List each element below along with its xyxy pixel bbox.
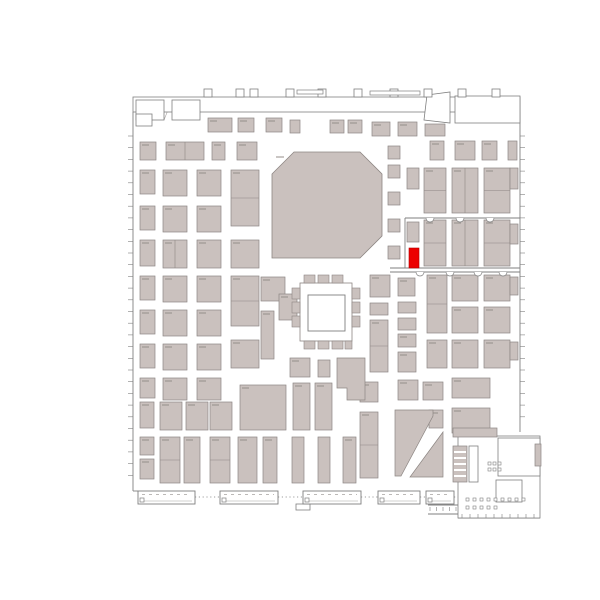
furniture-dot	[466, 506, 469, 509]
booth[interactable]	[163, 170, 187, 196]
furniture-dot	[473, 506, 476, 509]
booth[interactable]	[163, 276, 187, 302]
booth[interactable]	[231, 240, 259, 268]
booth[interactable]	[398, 334, 416, 347]
module-endcap	[305, 498, 309, 502]
booth[interactable]	[510, 277, 518, 295]
booth[interactable]	[453, 428, 497, 437]
booth[interactable]	[398, 318, 416, 330]
booth[interactable]	[292, 437, 304, 483]
booth[interactable]	[348, 120, 362, 133]
booth[interactable]	[210, 402, 232, 430]
furniture-dot	[493, 462, 496, 465]
bottom-service-module	[138, 491, 195, 504]
booth[interactable]	[186, 402, 208, 430]
ring-booth[interactable]	[304, 341, 315, 349]
booth[interactable]	[197, 240, 221, 268]
furniture-dot	[508, 498, 511, 501]
ring-booth[interactable]	[292, 302, 300, 313]
furniture-dot	[494, 506, 497, 509]
roof-tab	[236, 89, 244, 97]
door-arc	[416, 272, 424, 276]
booth[interactable]	[140, 402, 154, 428]
booth[interactable]	[510, 224, 518, 244]
booth[interactable]	[197, 310, 221, 336]
roof-tab	[354, 89, 362, 97]
booth[interactable]	[407, 222, 419, 242]
furniture-dot	[498, 462, 501, 465]
booth[interactable]	[343, 437, 356, 483]
roof-tab	[286, 89, 294, 97]
booth[interactable]	[266, 118, 282, 132]
ring-booth[interactable]	[352, 288, 360, 299]
booth[interactable]	[238, 118, 254, 132]
floor-plan-viewer	[0, 0, 600, 600]
booth[interactable]	[163, 310, 187, 336]
furniture-dot	[522, 498, 525, 501]
ring-booth[interactable]	[352, 316, 360, 327]
booth[interactable]	[372, 122, 390, 136]
octagon-pavilion[interactable]	[272, 152, 382, 258]
furniture-dot	[515, 498, 518, 501]
roof-tab	[250, 89, 258, 97]
ring-booth[interactable]	[318, 275, 329, 283]
booth[interactable]	[318, 360, 330, 377]
furniture-dot	[480, 498, 483, 501]
booth[interactable]	[140, 310, 155, 334]
building-structure	[469, 446, 478, 482]
booth[interactable]	[388, 192, 400, 205]
booth[interactable]	[452, 275, 478, 301]
ring-booth[interactable]	[332, 341, 343, 349]
booth[interactable]	[318, 437, 330, 483]
bottom-service-module	[303, 491, 361, 504]
furniture-dot	[501, 498, 504, 501]
booth[interactable]	[231, 340, 259, 368]
roof-tab	[424, 89, 432, 97]
furniture-dot	[480, 506, 483, 509]
booth[interactable]	[163, 206, 187, 232]
booth[interactable]	[140, 276, 155, 300]
booth[interactable]	[452, 307, 478, 333]
central-courtyard	[308, 295, 345, 331]
floor-plan-svg	[0, 0, 600, 600]
booth[interactable]	[238, 437, 257, 483]
furniture-dot	[498, 468, 501, 471]
booth[interactable]	[163, 344, 187, 370]
furniture-dot	[487, 498, 490, 501]
furniture-dot	[473, 498, 476, 501]
building-structure	[172, 100, 200, 120]
furniture-dot	[466, 498, 469, 501]
building-structure	[296, 504, 310, 510]
roof-tab	[458, 89, 466, 97]
stair-slab	[535, 444, 541, 466]
booth[interactable]	[484, 340, 510, 368]
roof-tab	[204, 89, 212, 97]
booth[interactable]	[407, 168, 419, 189]
booth[interactable]	[261, 311, 274, 359]
roof-tab	[492, 89, 500, 97]
booth[interactable]	[330, 120, 344, 133]
ring-booth[interactable]	[292, 288, 300, 299]
booth[interactable]	[388, 246, 400, 259]
booth[interactable]	[160, 402, 182, 430]
ring-booth[interactable]	[304, 275, 315, 283]
booth[interactable]	[484, 275, 510, 301]
booth[interactable]	[197, 206, 221, 232]
booth[interactable]	[484, 307, 510, 333]
booth[interactable]	[197, 344, 221, 370]
booth[interactable]	[425, 124, 445, 136]
booth[interactable]	[398, 302, 416, 313]
furniture-dot	[488, 462, 491, 465]
booth[interactable]	[290, 120, 300, 133]
building-structure	[136, 114, 152, 126]
booth[interactable]	[293, 383, 310, 430]
furniture-dot	[494, 498, 497, 501]
selected-booth[interactable]	[409, 248, 419, 268]
booth[interactable]	[197, 170, 221, 196]
ring-booth[interactable]	[292, 316, 300, 327]
furniture-dot	[488, 468, 491, 471]
booth[interactable]	[388, 165, 400, 178]
booth[interactable]	[510, 342, 518, 360]
ring-booth[interactable]	[345, 341, 352, 349]
furniture-dot	[493, 468, 496, 471]
ring-booth[interactable]	[332, 275, 343, 283]
module-endcap	[222, 498, 226, 502]
furniture-dot	[487, 506, 490, 509]
booth[interactable]	[263, 437, 277, 483]
booth[interactable]	[140, 240, 155, 266]
booth[interactable]	[197, 276, 221, 302]
module-endcap	[140, 498, 144, 502]
bottom-service-module	[220, 491, 278, 504]
booth[interactable]	[140, 344, 155, 368]
canopy-bar	[370, 91, 420, 95]
booth[interactable]	[184, 437, 200, 483]
booth[interactable]	[508, 141, 517, 160]
booth[interactable]	[398, 122, 417, 136]
booth[interactable]	[388, 219, 400, 232]
booth[interactable]	[140, 170, 155, 194]
booth[interactable]	[140, 206, 155, 230]
booth[interactable]	[388, 146, 400, 159]
booth[interactable]	[240, 385, 286, 430]
booth[interactable]	[452, 340, 478, 368]
module-endcap	[428, 498, 432, 502]
canopy-bar	[297, 90, 323, 94]
booth[interactable]	[315, 383, 332, 430]
booth[interactable]	[427, 340, 447, 368]
ring-booth[interactable]	[318, 341, 329, 349]
building-structure	[455, 96, 520, 123]
building-structure	[498, 438, 540, 476]
ring-booth[interactable]	[352, 302, 360, 313]
booth[interactable]	[370, 303, 388, 315]
module-endcap	[380, 498, 384, 502]
booth[interactable]	[337, 358, 365, 400]
booth[interactable]	[510, 168, 518, 189]
booth[interactable]	[208, 118, 232, 132]
